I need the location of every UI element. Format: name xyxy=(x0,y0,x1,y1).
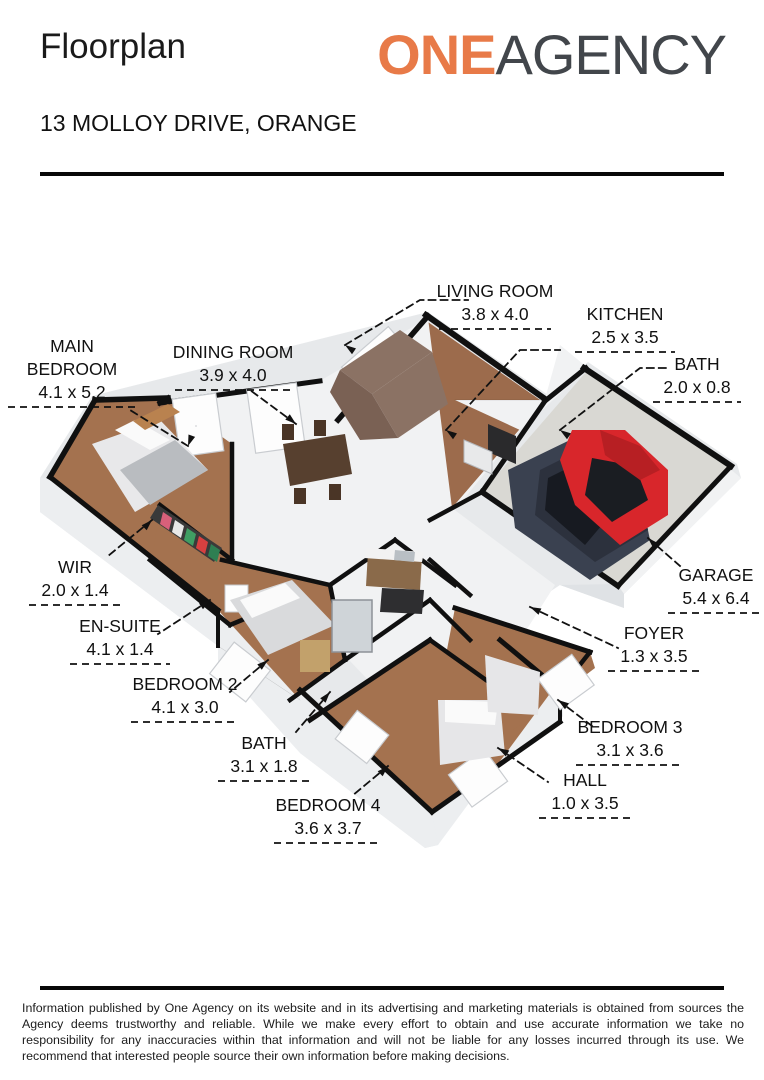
svg-text:2.5 x 3.5: 2.5 x 3.5 xyxy=(591,327,658,347)
svg-text:BEDROOM: BEDROOM xyxy=(27,359,117,379)
svg-text:HALL: HALL xyxy=(563,770,607,790)
svg-text:GARAGE: GARAGE xyxy=(679,565,754,585)
svg-text:MAIN: MAIN xyxy=(50,336,94,356)
svg-text:DINING ROOM: DINING ROOM xyxy=(173,342,294,362)
svg-text:2.0 x 1.4: 2.0 x 1.4 xyxy=(41,580,108,600)
svg-text:1.3 x 3.5: 1.3 x 3.5 xyxy=(620,646,687,666)
svg-text:EN-SUITE: EN-SUITE xyxy=(79,616,161,636)
svg-text:3.8 x 4.0: 3.8 x 4.0 xyxy=(461,304,528,324)
svg-text:5.4 x 6.4: 5.4 x 6.4 xyxy=(682,588,749,608)
svg-text:1.0 x 3.5: 1.0 x 3.5 xyxy=(551,793,618,813)
svg-text:WIR: WIR xyxy=(58,557,92,577)
svg-text:2.0 x 0.8: 2.0 x 0.8 xyxy=(663,377,730,397)
svg-text:BATH: BATH xyxy=(674,354,719,374)
svg-text:3.1 x 1.8: 3.1 x 1.8 xyxy=(230,756,297,776)
svg-text:BEDROOM 3: BEDROOM 3 xyxy=(577,717,682,737)
svg-text:3.6 x 3.7: 3.6 x 3.7 xyxy=(294,818,361,838)
svg-text:4.1 x 3.0: 4.1 x 3.0 xyxy=(151,697,218,717)
svg-text:FOYER: FOYER xyxy=(624,623,684,643)
svg-text:4.1 x 5.2: 4.1 x 5.2 xyxy=(38,382,105,402)
svg-text:3.1 x 3.6: 3.1 x 3.6 xyxy=(596,740,663,760)
svg-text:4.1 x 1.4: 4.1 x 1.4 xyxy=(86,639,153,659)
svg-text:BEDROOM 4: BEDROOM 4 xyxy=(275,795,380,815)
svg-text:BATH: BATH xyxy=(241,733,286,753)
svg-text:KITCHEN: KITCHEN xyxy=(587,304,664,324)
svg-text:3.9 x 4.0: 3.9 x 4.0 xyxy=(199,365,266,385)
svg-text:BEDROOM 2: BEDROOM 2 xyxy=(132,674,237,694)
svg-text:LIVING ROOM: LIVING ROOM xyxy=(437,281,554,301)
